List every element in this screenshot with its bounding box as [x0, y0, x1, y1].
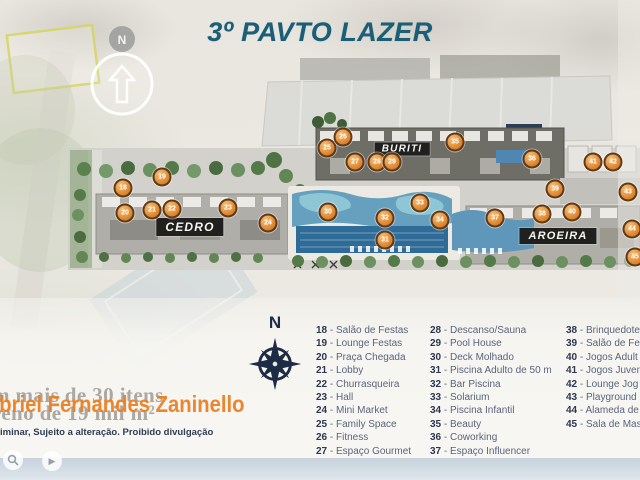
amenity-marker-23: 23 — [219, 199, 238, 218]
amenity-marker-37: 37 — [486, 209, 505, 228]
legend-item-41: 41 - Jogos Juven — [566, 364, 640, 377]
legend-item-25: 25 - Family Space — [316, 418, 430, 431]
amenity-marker-22: 22 — [163, 200, 182, 219]
amenity-marker-45: 45 — [626, 248, 640, 267]
amenity-marker-35: 35 — [446, 133, 465, 152]
legend: 18 - Salão de Festas19 - Lounge Festas20… — [316, 324, 640, 458]
legend-column-3: 38 - Brinquedote39 - Salão de Fes40 - Jo… — [566, 324, 640, 458]
legend-item-32: 32 - Bar Piscina — [430, 378, 566, 391]
legend-item-42: 42 - Lounge Jog — [566, 378, 640, 391]
building-label-cedro: CEDRO — [156, 218, 223, 236]
leisure-floor-plan-page: 3º PAVTO LAZER N CEDRO BURITI AROEIRA 18… — [0, 0, 640, 480]
amenity-marker-39: 39 — [546, 180, 565, 199]
legend-item-28: 28 - Descanso/Sauna — [430, 324, 566, 337]
legend-item-24: 24 - Mini Market — [316, 404, 430, 417]
legend-item-21: 21 - Lobby — [316, 364, 430, 377]
amenity-marker-41: 41 — [584, 153, 603, 172]
legend-item-35: 35 - Beauty — [430, 418, 566, 431]
legend-item-44: 44 - Alameda de — [566, 404, 640, 417]
legend-item-18: 18 - Salão de Festas — [316, 324, 430, 337]
legend-item-38: 38 - Brinquedote — [566, 324, 640, 337]
amenity-marker-32: 32 — [376, 209, 395, 228]
amenity-marker-21: 21 — [143, 201, 162, 220]
legend-item-23: 23 - Hall — [316, 391, 430, 404]
amenity-marker-27: 27 — [346, 153, 365, 172]
legend-item-27: 27 - Espaço Gourmet — [316, 445, 430, 458]
amenity-marker-34: 34 — [431, 211, 450, 230]
compass-rose-icon — [246, 332, 304, 396]
legend-item-40: 40 - Jogos Adult — [566, 351, 640, 364]
compass-rose: N — [246, 314, 304, 406]
legend-item-43: 43 - Playground — [566, 391, 640, 404]
legend-item-37: 37 - Espaço Influencer — [430, 445, 566, 458]
amenity-marker-38: 38 — [533, 205, 552, 224]
amenity-marker-19: 19 — [153, 168, 172, 187]
footer-band — [0, 458, 640, 480]
legend-item-33: 33 - Solarium — [430, 391, 566, 404]
compass-rose-north-label: N — [246, 314, 304, 331]
amenity-marker-40: 40 — [563, 203, 582, 222]
amenity-marker-33: 33 — [411, 194, 430, 213]
broker-watermark: abriel Fernandes Zaninello — [0, 391, 244, 418]
legend-item-29: 29 - Pool House — [430, 337, 566, 350]
legend-item-31: 31 - Piscina Adulto de 50 m — [430, 364, 566, 377]
amenity-marker-31: 31 — [376, 231, 395, 250]
legend-column-1: 18 - Salão de Festas19 - Lounge Festas20… — [316, 324, 430, 458]
amenity-marker-36: 36 — [523, 150, 542, 169]
building-label-aroeira: AROEIRA — [519, 228, 596, 244]
legend-column-2: 28 - Descanso/Sauna29 - Pool House30 - D… — [430, 324, 566, 458]
play-icon[interactable]: ▶ — [42, 451, 62, 471]
building-label-buriti: BURITI — [375, 143, 430, 156]
north-label: N — [118, 33, 127, 47]
amenity-marker-44: 44 — [623, 220, 640, 239]
legend-item-39: 39 - Salão de Fes — [566, 337, 640, 350]
amenity-marker-42: 42 — [604, 153, 623, 172]
amenity-marker-43: 43 — [619, 183, 638, 202]
legend-item-30: 30 - Deck Molhado — [430, 351, 566, 364]
legend-item-45: 45 - Sala de Mas — [566, 418, 640, 431]
legend-item-19: 19 - Lounge Festas — [316, 337, 430, 350]
amenity-marker-30: 30 — [319, 203, 338, 222]
amenity-marker-29: 29 — [383, 153, 402, 172]
legend-item-22: 22 - Churrasqueira — [316, 378, 430, 391]
legend-item-36: 36 - Coworking — [430, 431, 566, 444]
amenity-marker-26: 26 — [334, 128, 353, 147]
legend-item-26: 26 - Fitness — [316, 431, 430, 444]
disclaimer-text: iminar, Sujeito a alteração. Proibido di… — [0, 427, 213, 438]
legend-item-20: 20 - Praça Chegada — [316, 351, 430, 364]
page-title: 3º PAVTO LAZER — [207, 17, 432, 48]
amenity-marker-20: 20 — [116, 204, 135, 223]
magnifier-icon[interactable] — [3, 450, 23, 470]
legend-item-34: 34 - Piscina Infantil — [430, 404, 566, 417]
amenity-marker-24: 24 — [259, 214, 278, 233]
amenity-marker-18: 18 — [114, 179, 133, 198]
north-compass: N — [86, 22, 158, 118]
